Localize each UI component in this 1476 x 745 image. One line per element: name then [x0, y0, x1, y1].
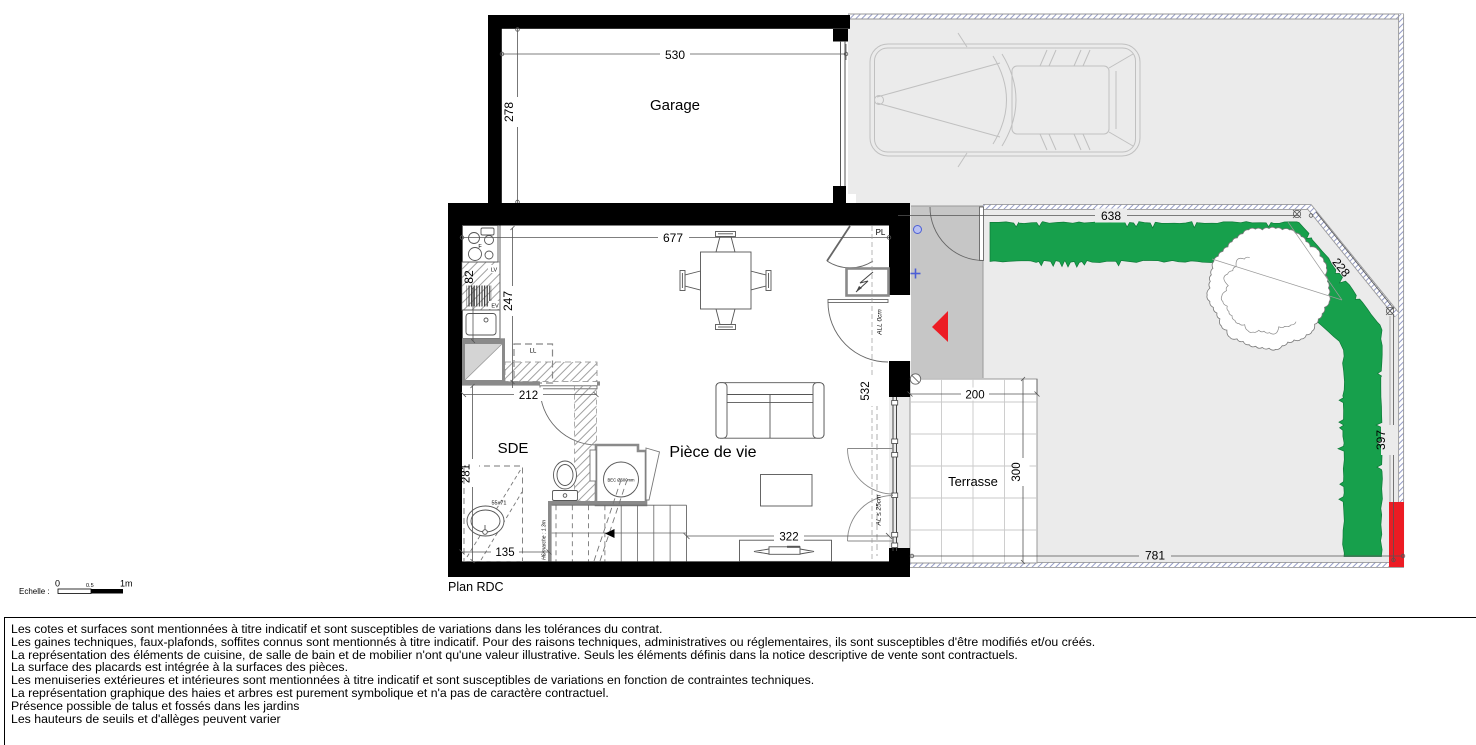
- svg-text:532: 532: [860, 381, 872, 400]
- svg-text:Plan RDC: Plan RDC: [448, 580, 504, 594]
- svg-text:638: 638: [1101, 209, 1121, 223]
- svg-text:BEC Ø600mm: BEC Ø600mm: [608, 478, 636, 483]
- svg-text:200: 200: [965, 390, 984, 402]
- svg-text:Garage: Garage: [650, 97, 700, 114]
- svg-text:322: 322: [779, 532, 798, 544]
- svg-text:82: 82: [462, 270, 476, 284]
- svg-text:300: 300: [1011, 462, 1023, 481]
- svg-text:677: 677: [663, 231, 683, 245]
- svg-text:212: 212: [519, 390, 538, 402]
- svg-text:135: 135: [495, 547, 514, 559]
- svg-text:278: 278: [502, 102, 516, 122]
- svg-text:281: 281: [461, 464, 473, 483]
- svg-text:SDE: SDE: [498, 440, 529, 457]
- svg-text:530: 530: [665, 48, 685, 62]
- svg-text:EV: EV: [491, 304, 499, 310]
- svg-text:LL: LL: [530, 349, 537, 355]
- svg-text:0: 0: [55, 579, 60, 589]
- svg-text:Terrasse: Terrasse: [948, 474, 998, 489]
- svg-text:PL: PL: [876, 228, 886, 237]
- svg-text:55x71: 55x71: [492, 501, 507, 507]
- svg-text:247: 247: [501, 291, 515, 311]
- svg-text:Echelle :: Echelle :: [19, 587, 50, 596]
- svg-text:1m: 1m: [120, 579, 133, 589]
- svg-text:LV: LV: [491, 268, 498, 274]
- svg-text:0.5: 0.5: [86, 583, 94, 589]
- svg-text:397: 397: [1374, 430, 1388, 450]
- svg-text:Pièce de vie: Pièce de vie: [669, 444, 756, 461]
- svg-text:AL ≤ 25cm: AL ≤ 25cm: [876, 494, 883, 526]
- svg-text:ALL 0cm: ALL 0cm: [877, 309, 884, 336]
- svg-text:781: 781: [1145, 549, 1165, 563]
- svg-text:H6/marche : 1.3m: H6/marche : 1.3m: [542, 520, 548, 560]
